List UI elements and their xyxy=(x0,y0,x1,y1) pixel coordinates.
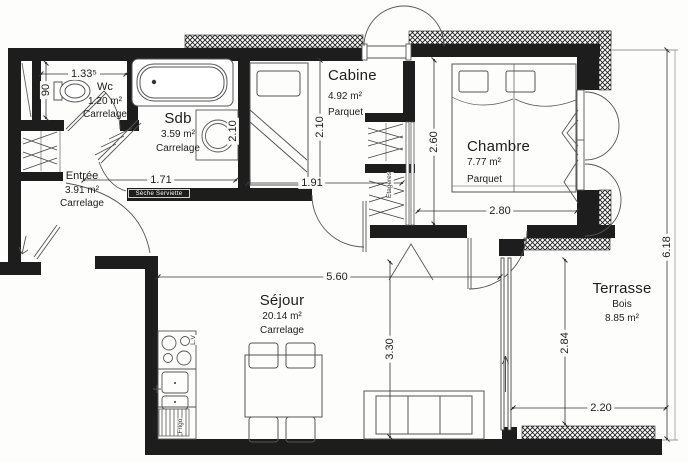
room-name-cabine: Cabine xyxy=(328,67,377,84)
room-name-sejour: Séjour xyxy=(260,292,305,309)
room-area-cabine: 4.92 m² xyxy=(328,91,377,103)
room-floor-chambre: Parquet xyxy=(467,174,530,186)
dim-terrasse-width: 2.20 xyxy=(587,402,614,414)
dim-sejour-height: 3.30 xyxy=(384,335,396,362)
room-floor-wc: Carrelage xyxy=(83,109,127,121)
fridge xyxy=(159,409,189,436)
cabine-door xyxy=(312,195,366,252)
single-bed xyxy=(250,63,308,185)
room-area-chambre: 7.77 m² xyxy=(467,157,530,169)
room-label-cabine: Cabine 4.92 m² Parquet xyxy=(328,67,377,118)
dishwasher-label: L.V xyxy=(191,335,198,345)
room-label-terrasse: Terrasse Bois 8.85 m² xyxy=(592,280,651,324)
floor-plan: Wc 1.20 m² Carrelage Sdb 3.59 m² Carrela… xyxy=(0,0,688,462)
closet-sliding-doors xyxy=(406,122,414,225)
towel-dryer-label: Sèche Serviette xyxy=(128,189,190,198)
dim-terrasse-height: 2.84 xyxy=(559,329,571,356)
entry-wardrobe xyxy=(23,131,60,172)
living-sliding-bay-window xyxy=(501,258,511,430)
dim-cabine-height: 2.10 xyxy=(314,113,326,140)
room-area-sdb: 3.59 m² xyxy=(156,129,200,141)
room-name-terrasse: Terrasse xyxy=(592,280,651,297)
room-area-wc: 1.20 m² xyxy=(83,96,127,108)
dim-cabine-width: 1.91 xyxy=(298,177,325,189)
dim-sdb-width: 1.71 xyxy=(147,174,174,186)
dining-table xyxy=(245,343,322,442)
room-name-wc: Wc xyxy=(83,81,127,94)
room-name-entree: Entrée xyxy=(60,170,104,183)
cabine-wardrobe xyxy=(368,123,403,161)
dim-sdb-height: 2.10 xyxy=(227,117,239,144)
room-label-sejour: Séjour 20.14 m² Carrelage xyxy=(260,292,305,336)
door-swing-marker xyxy=(389,244,433,280)
room-label-chambre: Chambre 7.77 m² Parquet xyxy=(467,138,530,185)
fridge-label: Frigo xyxy=(178,419,185,434)
room-floor-sejour: Carrelage xyxy=(260,325,305,337)
room-name-chambre: Chambre xyxy=(467,138,530,155)
dim-building-depth: 6.18 xyxy=(661,233,673,260)
dim-chambre-height: 2.60 xyxy=(428,128,440,155)
room-label-wc: Wc 1.20 m² Carrelage xyxy=(83,81,127,121)
room-area-sejour: 20.14 m² xyxy=(260,311,305,323)
room-floor-sdb: Carrelage xyxy=(156,143,200,155)
shelves-label: Etagères xyxy=(387,172,394,198)
room-name-sdb: Sdb xyxy=(156,110,200,127)
room-area-entree: 3.91 m² xyxy=(60,185,104,197)
dim-chambre-width: 2.80 xyxy=(486,205,513,217)
duct-diagonal xyxy=(22,63,31,117)
room-floor-terrasse: Bois xyxy=(592,299,651,311)
room-label-sdb: Sdb 3.59 m² Carrelage xyxy=(156,110,200,154)
dim-wc-width: 1.33⁵ xyxy=(68,68,100,80)
dim-wc-depth: 90 xyxy=(40,81,52,99)
room-label-entree: Entrée 3.91 m² Carrelage xyxy=(60,170,104,210)
room-floor-entree: Carrelage xyxy=(60,198,104,210)
sofa xyxy=(364,391,484,439)
cooktop xyxy=(162,336,191,365)
dim-sejour-width: 5.60 xyxy=(323,271,350,283)
room-area-terrasse: 8.85 m² xyxy=(592,313,651,325)
room-floor-cabine: Parquet xyxy=(328,107,377,119)
bathtub xyxy=(132,59,233,106)
